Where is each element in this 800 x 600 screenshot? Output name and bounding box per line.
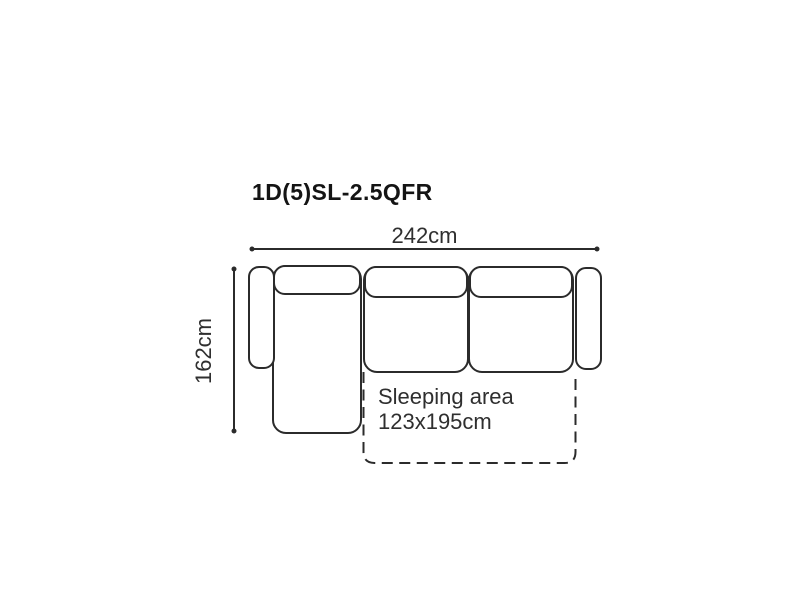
seat-left-backrest-cushion-outline [364, 266, 468, 298]
depth-dimension-end-dot [232, 429, 237, 434]
width-dimension-line [252, 248, 597, 250]
sleeping-area-label-line1: Sleeping area [378, 384, 514, 409]
model-code-title: 1D(5)SL-2.5QFR [252, 179, 433, 206]
right-armrest-outline [575, 267, 602, 370]
depth-dimension-line [233, 268, 235, 432]
chaise-backrest-cushion-outline [273, 265, 361, 295]
width-dimension-start-dot [250, 247, 255, 252]
depth-dimension-label: 162cm [191, 318, 217, 384]
left-armrest-outline [248, 266, 275, 369]
furniture-dimension-diagram: 1D(5)SL-2.5QFR 242cm 162cm Sleeping area… [0, 0, 800, 600]
seat-right-backrest-cushion-outline [469, 266, 573, 298]
width-dimension-end-dot [595, 247, 600, 252]
sleeping-area-label-line2: 123x195cm [378, 409, 514, 434]
width-dimension-label: 242cm [252, 223, 597, 249]
depth-dimension-start-dot [232, 267, 237, 272]
sleeping-area-label: Sleeping area 123x195cm [378, 384, 514, 434]
